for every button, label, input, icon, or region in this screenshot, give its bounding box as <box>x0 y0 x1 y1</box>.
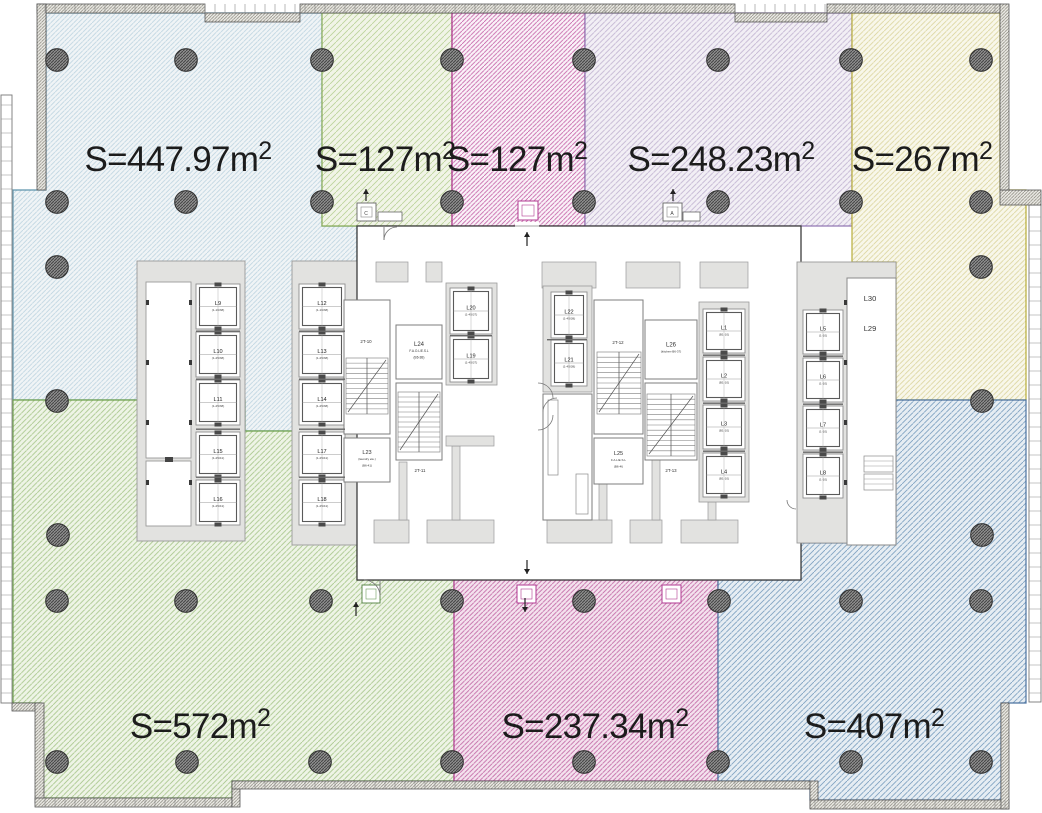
svg-text:(B1-10): (B1-10) <box>719 477 729 481</box>
svg-text:S=572m2: S=572m2 <box>130 704 270 746</box>
svg-text:(1-25/38): (1-25/38) <box>212 404 225 408</box>
svg-text:(laundry ele.): (laundry ele.) <box>358 457 376 461</box>
svg-text:S=248.23m2: S=248.23m2 <box>628 137 815 179</box>
svg-text:S=267m2: S=267m2 <box>852 137 992 179</box>
svg-text:L4: L4 <box>721 470 727 476</box>
svg-text:L21: L21 <box>564 358 573 364</box>
svg-text:L15: L15 <box>213 449 222 455</box>
svg-text:L10: L10 <box>213 349 222 355</box>
svg-text:(1-10): (1-10) <box>819 382 827 386</box>
svg-text:L7: L7 <box>820 423 826 429</box>
svg-text:(B6-41): (B6-41) <box>362 463 372 467</box>
svg-text:C: C <box>364 211 368 217</box>
svg-text:L29: L29 <box>864 324 877 333</box>
svg-text:L25: L25 <box>614 451 623 457</box>
svg-text:L18: L18 <box>317 497 326 503</box>
svg-text:(1-45/38): (1-45/38) <box>563 365 576 369</box>
svg-text:(1-25/38): (1-25/38) <box>316 404 329 408</box>
svg-text:L17: L17 <box>317 449 326 455</box>
svg-text:(B1-10): (B1-10) <box>719 429 729 433</box>
svg-text:L14: L14 <box>317 397 326 403</box>
svg-text:2T-10: 2T-10 <box>360 339 372 344</box>
svg-text:L22: L22 <box>564 310 573 316</box>
svg-text:(1-25/38): (1-25/38) <box>212 356 225 360</box>
svg-text:S=127m2: S=127m2 <box>447 137 587 179</box>
svg-text:L8: L8 <box>820 471 826 477</box>
svg-text:L11: L11 <box>214 397 223 403</box>
svg-text:(1-25/38): (1-25/38) <box>316 356 329 360</box>
svg-text:2T-11: 2T-11 <box>415 468 426 473</box>
svg-text:L3: L3 <box>721 422 727 428</box>
svg-text:(1-25/41): (1-25/41) <box>316 456 329 460</box>
svg-text:(1-45/37): (1-45/37) <box>465 361 478 365</box>
svg-text:(B1-10): (B1-10) <box>719 333 729 337</box>
svg-text:(1-16/38): (1-16/38) <box>212 308 225 312</box>
svg-text:(1-25/41): (1-25/41) <box>212 504 225 508</box>
svg-text:(1-25/41): (1-25/41) <box>212 456 225 460</box>
svg-text:(B6-4I): (B6-4I) <box>614 464 623 468</box>
svg-text:L30: L30 <box>864 294 877 303</box>
svg-text:(1-10): (1-10) <box>819 334 827 338</box>
svg-text:(1-45/38): (1-45/38) <box>563 317 576 321</box>
svg-text:(1-16/38): (1-16/38) <box>316 308 329 312</box>
svg-text:L6: L6 <box>820 375 826 381</box>
svg-text:(1-25/41): (1-25/41) <box>316 504 329 508</box>
svg-text:2T-12: 2T-12 <box>612 340 624 345</box>
svg-text:L13: L13 <box>317 349 326 355</box>
svg-text:(B6-3B): (B6-3B) <box>414 355 425 359</box>
svg-text:S=447.97m2: S=447.97m2 <box>85 137 272 179</box>
svg-text:L24: L24 <box>414 342 425 348</box>
svg-text:L12: L12 <box>317 301 326 307</box>
svg-text:(1-10): (1-10) <box>819 478 827 482</box>
svg-text:(kitchen-B6-37): (kitchen-B6-37) <box>661 350 682 354</box>
svg-text:(1-45/37): (1-45/37) <box>465 313 478 317</box>
svg-text:L1: L1 <box>721 326 727 332</box>
svg-text:L23: L23 <box>362 450 371 456</box>
svg-text:L9: L9 <box>215 301 221 307</box>
svg-text:F.A.O.L/E.S.L: F.A.O.L/E.S.L <box>409 349 429 353</box>
svg-text:(1-10): (1-10) <box>819 430 827 434</box>
svg-text:(B1-10): (B1-10) <box>719 381 729 385</box>
svg-text:F.A.L/E.S.L: F.A.L/E.S.L <box>611 458 626 462</box>
svg-text:L20: L20 <box>466 306 475 312</box>
svg-text:L26: L26 <box>666 343 677 349</box>
svg-text:L19: L19 <box>466 354 475 360</box>
svg-text:L16: L16 <box>213 497 222 503</box>
svg-text:S=127m2: S=127m2 <box>315 137 455 179</box>
svg-text:2T-13: 2T-13 <box>665 468 677 473</box>
svg-text:S=237.34m2: S=237.34m2 <box>502 704 689 746</box>
svg-text:S=407m2: S=407m2 <box>804 704 944 746</box>
svg-text:L5: L5 <box>820 327 826 333</box>
svg-text:L2: L2 <box>721 374 727 380</box>
